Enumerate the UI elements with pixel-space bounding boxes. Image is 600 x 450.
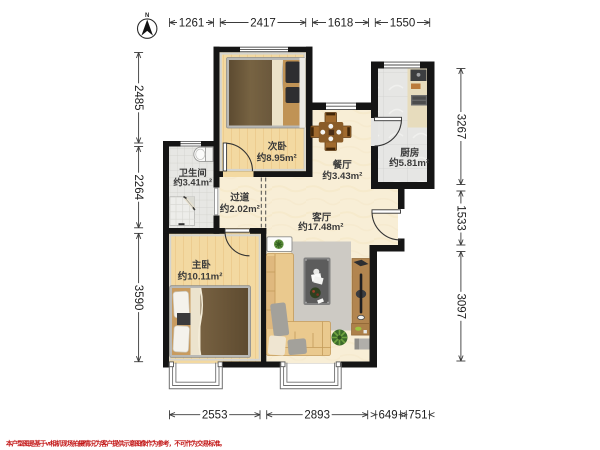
svg-text:3097: 3097: [454, 294, 466, 320]
svg-text:主卧: 主卧: [192, 259, 212, 271]
svg-text:次卧: 次卧: [268, 140, 288, 152]
svg-text:约3.41m²: 约3.41m²: [173, 177, 212, 188]
svg-text:2485: 2485: [132, 85, 144, 111]
svg-text:过道: 过道: [230, 191, 250, 203]
svg-text:约2.02m²: 约2.02m²: [220, 203, 260, 215]
svg-text:751: 751: [408, 410, 427, 422]
svg-text:约10.11m²: 约10.11m²: [178, 270, 223, 282]
svg-text:649: 649: [379, 410, 398, 422]
svg-text:1550: 1550: [390, 17, 416, 29]
svg-text:约5.81m²: 约5.81m²: [389, 157, 429, 169]
svg-text:约8.95m²: 约8.95m²: [257, 152, 297, 164]
svg-text:2893: 2893: [304, 410, 330, 422]
svg-text:卫生间: 卫生间: [179, 167, 207, 178]
svg-text:1261: 1261: [179, 17, 205, 29]
svg-text:本户型图是基于vr相机现场拍摄情况为客户提供示意图像作为参考: 本户型图是基于vr相机现场拍摄情况为客户提供示意图像作为参考，不可作为交易标准。: [6, 439, 225, 448]
svg-text:1618: 1618: [328, 17, 354, 29]
svg-text:1533: 1533: [454, 205, 466, 231]
svg-text:3590: 3590: [132, 285, 144, 311]
svg-text:2264: 2264: [132, 174, 144, 200]
svg-text:餐厅: 餐厅: [332, 159, 353, 171]
svg-text:3267: 3267: [454, 114, 466, 140]
svg-text:2417: 2417: [250, 17, 276, 29]
svg-text:2553: 2553: [202, 410, 228, 422]
svg-text:约17.48m²: 约17.48m²: [298, 221, 343, 233]
svg-text:约3.43m²: 约3.43m²: [322, 170, 362, 182]
svg-text:N: N: [145, 13, 149, 19]
